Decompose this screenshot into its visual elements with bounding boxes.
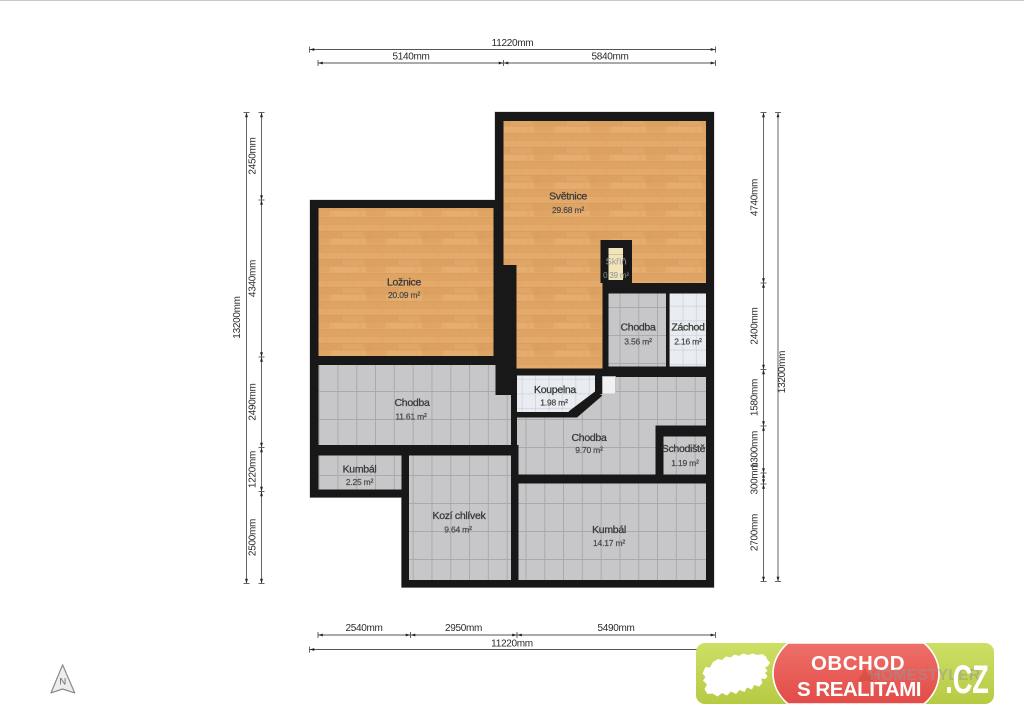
svg-text:14.17 m²: 14.17 m²	[593, 538, 625, 548]
svg-text:2400mm: 2400mm	[750, 307, 761, 344]
svg-text:20.09 m²: 20.09 m²	[388, 290, 420, 300]
svg-text:2490mm: 2490mm	[248, 383, 259, 420]
svg-text:29.68 m²: 29.68 m²	[552, 205, 584, 215]
svg-text:Kumbál: Kumbál	[343, 464, 377, 476]
svg-text:Chodba: Chodba	[572, 432, 607, 444]
svg-text:2950mm: 2950mm	[445, 623, 482, 634]
svg-text:0.39 m²: 0.39 m²	[603, 271, 629, 280]
svg-text:1220mm: 1220mm	[248, 451, 259, 488]
svg-text:9.64 m²: 9.64 m²	[444, 525, 472, 535]
svg-text:11220mm: 11220mm	[491, 639, 533, 650]
svg-text:11220mm: 11220mm	[492, 38, 534, 49]
svg-text:N: N	[59, 677, 66, 688]
svg-text:2.16 m²: 2.16 m²	[674, 337, 702, 347]
svg-text:1.19 m²: 1.19 m²	[671, 458, 699, 468]
svg-text:2540mm: 2540mm	[345, 623, 382, 634]
svg-text:9.70 m²: 9.70 m²	[575, 445, 603, 455]
svg-text:13200mm: 13200mm	[232, 296, 243, 338]
svg-text:13200mm: 13200mm	[777, 351, 788, 393]
svg-text:2500mm: 2500mm	[248, 519, 259, 556]
svg-text:3.56 m²: 3.56 m²	[624, 337, 652, 347]
svg-text:300mm: 300mm	[750, 463, 761, 495]
svg-text:5140mm: 5140mm	[392, 52, 429, 63]
svg-text:2.25 m²: 2.25 m²	[346, 477, 374, 487]
svg-text:Skříň: Skříň	[606, 257, 627, 268]
svg-text:11.61 m²: 11.61 m²	[395, 412, 427, 422]
svg-text:4740mm: 4740mm	[750, 179, 761, 216]
svg-text:Kumbál: Kumbál	[592, 524, 626, 536]
svg-text:2700mm: 2700mm	[750, 514, 761, 551]
svg-text:5840mm: 5840mm	[591, 52, 628, 63]
svg-text:Chodba: Chodba	[621, 322, 656, 334]
svg-text:4340mm: 4340mm	[248, 260, 259, 297]
svg-text:5490mm: 5490mm	[597, 623, 634, 634]
svg-text:2450mm: 2450mm	[248, 137, 259, 174]
svg-text:Schodiště: Schodiště	[662, 443, 706, 455]
svg-text:Ložnice: Ložnice	[387, 277, 422, 289]
svg-text:Koupelna: Koupelna	[534, 384, 576, 396]
svg-text:Světnice: Světnice	[549, 191, 587, 203]
svg-text:1300mm: 1300mm	[750, 431, 761, 468]
svg-text:1.98 m²: 1.98 m²	[540, 398, 568, 408]
svg-text:.CZ: .CZ	[945, 658, 988, 702]
svg-text:Záchod: Záchod	[671, 322, 705, 334]
svg-text:Chodba: Chodba	[395, 397, 430, 409]
svg-text:Kozí chlívek: Kozí chlívek	[432, 510, 486, 522]
svg-text:1580mm: 1580mm	[750, 379, 761, 416]
